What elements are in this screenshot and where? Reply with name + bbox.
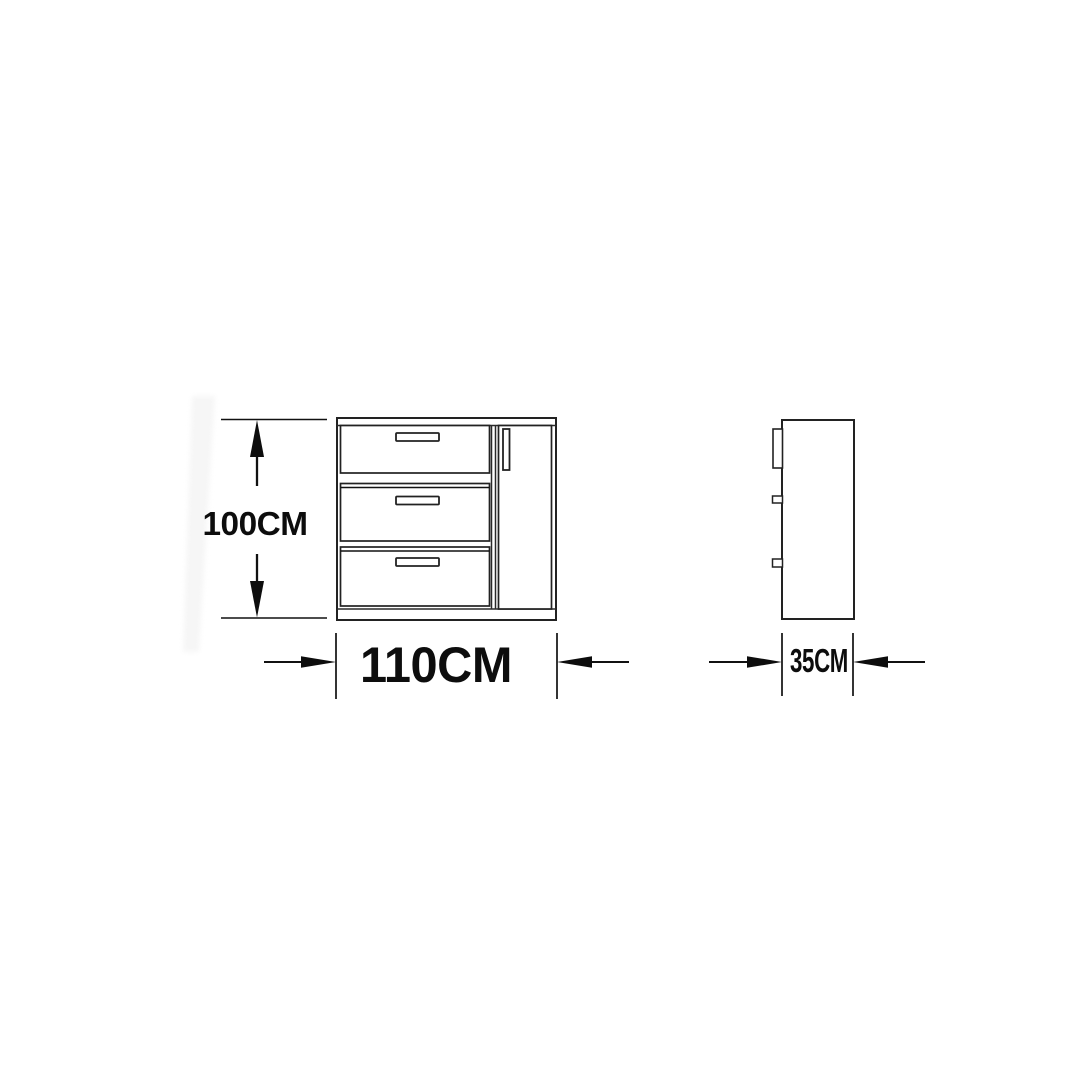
drawer-handle-2: [396, 497, 439, 505]
drawer-handle-profile-2: [773, 559, 783, 567]
side-panel: [782, 420, 854, 619]
door-handle-profile: [773, 429, 783, 468]
arrow-right-icon: [747, 656, 782, 668]
width-dimension: 110CM: [264, 633, 629, 699]
arrow-down-icon: [250, 581, 264, 618]
drawer-front-2: [341, 484, 490, 542]
depth-dimension: 35CM: [709, 633, 925, 696]
drawer-front-3: [341, 547, 490, 606]
drawer-handle-1: [396, 433, 439, 441]
arrow-left-icon: [557, 656, 592, 668]
arrow-right-icon: [301, 656, 336, 668]
door-handle: [503, 429, 510, 470]
diagram-drawing: 100CM 110CM 35CM: [0, 0, 1080, 1080]
drawer-handle-3: [396, 558, 439, 566]
front-view: [337, 418, 556, 620]
width-dimension-label: 110CM: [360, 637, 512, 693]
drawer-handle-profile-1: [773, 496, 783, 503]
arrow-left-icon: [853, 656, 888, 668]
height-dimension-label: 100CM: [203, 506, 308, 543]
furniture-dimension-diagram: 100CM 110CM 35CM: [0, 0, 1080, 1080]
arrow-up-icon: [250, 420, 264, 457]
height-dimension: 100CM: [203, 420, 328, 619]
side-view: [773, 420, 855, 619]
depth-dimension-label: 35CM: [790, 642, 848, 679]
